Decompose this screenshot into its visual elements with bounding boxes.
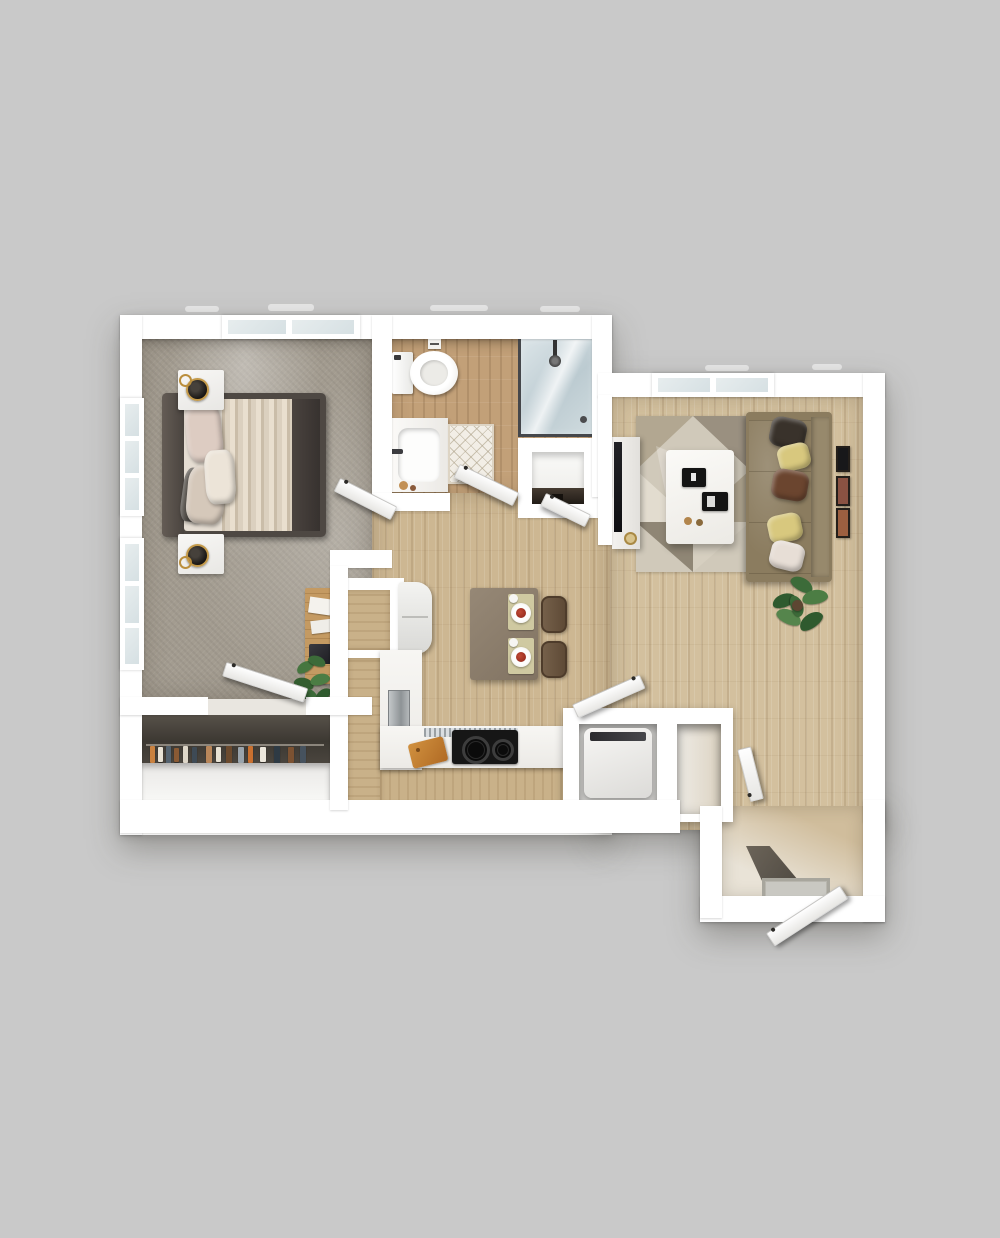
floor-plan-scene xyxy=(0,0,1000,1238)
wall-living-west xyxy=(598,395,612,545)
roof-edge-mark xyxy=(430,305,488,311)
vanity-sink xyxy=(398,428,440,482)
roof-edge-mark xyxy=(705,365,749,371)
kitchen-cabinet-run xyxy=(348,658,382,806)
place-setting xyxy=(508,594,534,630)
burner-icon xyxy=(462,736,490,764)
pantry-nook xyxy=(344,590,390,650)
living-plant xyxy=(770,576,828,634)
tray-book xyxy=(707,496,715,507)
toilet-seat xyxy=(420,360,448,386)
coat-closet-nook xyxy=(677,724,721,814)
toilet-flush-button xyxy=(394,355,401,360)
wall-bedroom-south xyxy=(306,697,372,715)
window xyxy=(120,398,144,516)
gold-ring-decor-icon xyxy=(179,374,192,387)
shower-drain xyxy=(580,416,587,423)
table-decor-icon xyxy=(684,517,692,525)
roof-edge-mark xyxy=(812,364,842,370)
tray-decor xyxy=(691,473,696,481)
shower-glass-frame xyxy=(518,434,596,437)
roof-edge-mark xyxy=(540,306,580,312)
desk-papers xyxy=(310,619,331,634)
console-decor-icon xyxy=(624,532,637,545)
wall-art xyxy=(836,476,850,506)
shower-glass-frame xyxy=(518,337,521,437)
toilet-paper-roll xyxy=(430,343,439,345)
wall-kitchen-west xyxy=(330,566,348,810)
dining-chair xyxy=(541,641,567,678)
table-decor-icon xyxy=(696,519,703,526)
fridge xyxy=(398,582,432,654)
burner-icon xyxy=(492,739,514,761)
bed-foot-blanket xyxy=(292,399,320,531)
roof-edge-mark xyxy=(268,304,314,311)
closet-floor xyxy=(140,763,330,802)
wall-bedroom-bath-divider xyxy=(372,315,392,511)
dining-chair xyxy=(541,596,567,633)
window xyxy=(120,538,144,670)
desk-papers xyxy=(308,597,332,616)
roof-edge-mark xyxy=(185,306,219,312)
soap-dish-icon xyxy=(399,481,408,490)
cutting-board-hole xyxy=(416,748,420,752)
washer-control-panel xyxy=(590,732,646,741)
wall-art xyxy=(836,446,850,472)
wall-art xyxy=(836,508,850,538)
wall-bedroom-south xyxy=(120,697,208,715)
wall-living-right xyxy=(863,373,885,822)
shower-head-icon xyxy=(549,355,561,367)
wall-entry-left xyxy=(700,806,722,918)
tv xyxy=(614,442,622,532)
wall-exterior-top xyxy=(120,315,612,339)
fridge-door-seam xyxy=(402,616,428,618)
window xyxy=(222,315,360,339)
bed-pillow xyxy=(203,449,237,505)
closet-door-threshold xyxy=(208,699,306,715)
sofa xyxy=(746,412,832,582)
gold-ring-decor-icon xyxy=(179,556,192,569)
place-setting xyxy=(508,638,534,674)
black-tray-icon xyxy=(702,492,728,511)
wall-exterior-bottom xyxy=(120,800,680,833)
window xyxy=(652,373,774,397)
soap-dish-icon xyxy=(410,485,416,491)
